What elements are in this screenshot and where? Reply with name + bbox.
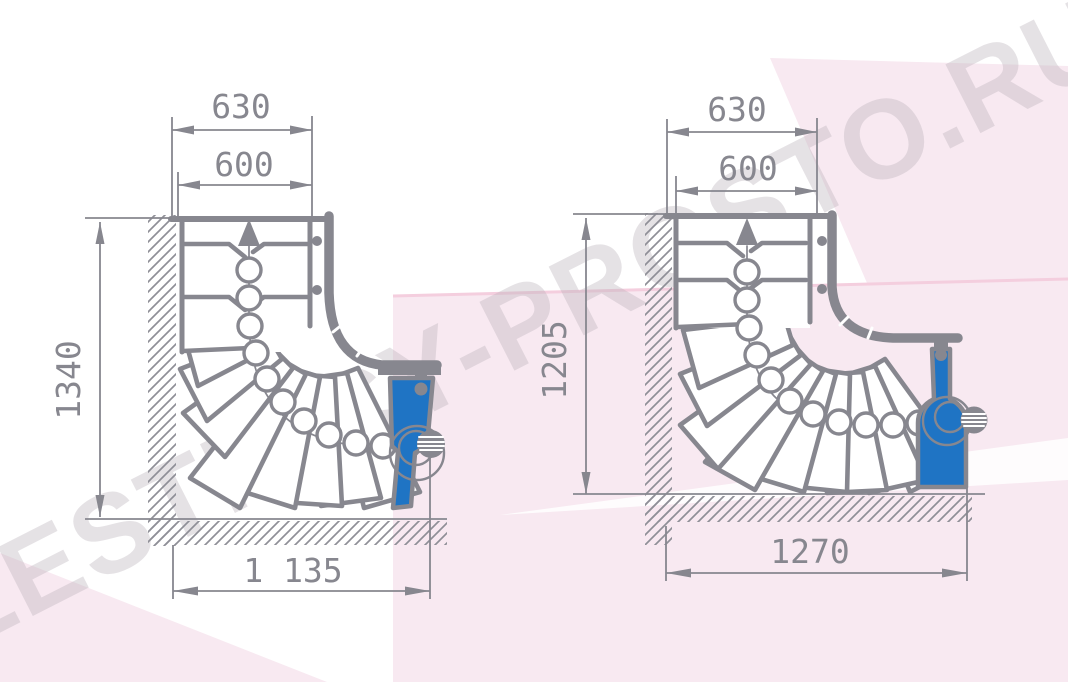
dim-1270-label: 1270 bbox=[770, 532, 849, 571]
dim-1205-label: 1205 bbox=[535, 320, 574, 399]
stringer-mount bbox=[312, 236, 322, 246]
newel-post-blue bbox=[918, 349, 966, 487]
dim-1135-label: 1 135 bbox=[243, 551, 342, 590]
floor-hatch bbox=[150, 521, 447, 545]
handrail-knob bbox=[961, 407, 988, 434]
dim-600-label: 600 bbox=[214, 145, 274, 184]
stringer-mount bbox=[817, 236, 827, 246]
dim-600-label: 600 bbox=[718, 149, 778, 188]
handrail-knob bbox=[417, 430, 445, 458]
right-staircase-plan bbox=[645, 213, 988, 545]
dim-630-label: 630 bbox=[211, 87, 271, 126]
wall-hatch bbox=[645, 213, 672, 545]
stringer-mount bbox=[312, 285, 322, 295]
post-notch bbox=[415, 383, 428, 396]
outer-stringer bbox=[832, 215, 958, 338]
post-notch bbox=[935, 349, 947, 361]
dim-1340-label: 1340 bbox=[49, 340, 88, 419]
technical-drawing-page: LESTNICY-PROSTO.RU bbox=[0, 0, 1068, 682]
landing-edge-bar bbox=[378, 363, 441, 375]
dim-630-label: 630 bbox=[707, 90, 767, 129]
floor-hatch bbox=[645, 496, 972, 522]
left-staircase-plan bbox=[148, 215, 447, 546]
staircase-drawings: 630 600 1340 1 135 bbox=[0, 0, 1068, 682]
stringer-mount bbox=[817, 284, 827, 294]
outer-stringer bbox=[329, 216, 437, 365]
wall-hatch bbox=[148, 215, 176, 546]
